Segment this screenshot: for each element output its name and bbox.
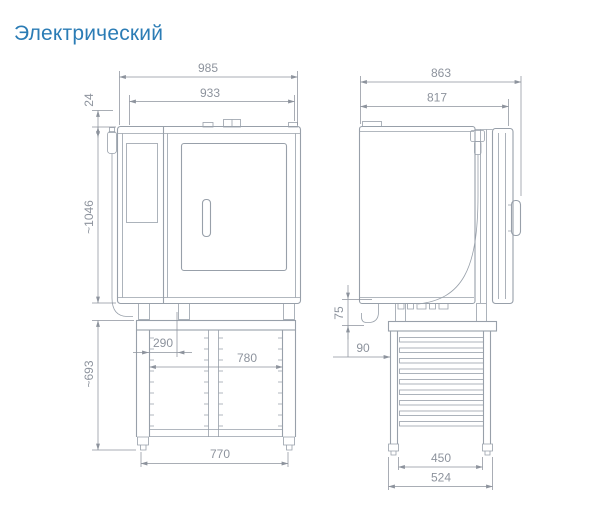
front-oven-body <box>118 127 301 304</box>
side-oven-body <box>360 122 514 304</box>
dim-front-stand-height: ~693 <box>82 360 96 387</box>
drain-pipe <box>362 304 379 323</box>
dim-side-stand-setback: 90 <box>356 341 370 355</box>
top-vents <box>203 120 298 128</box>
oven-feet <box>139 304 295 320</box>
dim-side-feet-outer: 524 <box>431 471 451 485</box>
dim-side-drain-height: 75 <box>332 306 346 320</box>
dim-side-body-depth: 817 <box>427 91 447 105</box>
front-dimensions: 985 933 24 ~1046 ~693 290 780 770 <box>82 61 298 467</box>
side-stand <box>389 322 497 456</box>
dim-side-feet-inner: 450 <box>431 451 451 465</box>
dimension-drawing: 985 933 24 ~1046 ~693 290 780 770 <box>0 0 600 514</box>
rack-rail-ticks <box>150 338 283 426</box>
stand-slats <box>400 338 484 427</box>
door-handle <box>203 200 211 237</box>
dim-front-overall-width: 985 <box>198 61 218 75</box>
dim-front-stand-clear-width: 780 <box>237 351 257 365</box>
front-view: 985 933 24 ~1046 ~693 290 780 770 <box>82 61 301 467</box>
dim-front-foot-offset: 290 <box>153 336 173 350</box>
door-glass <box>182 144 287 271</box>
dim-front-top-detail: 24 <box>82 93 96 107</box>
side-underside <box>362 304 487 323</box>
dim-front-overall-height: ~1046 <box>82 200 96 234</box>
control-panel-display <box>127 144 158 223</box>
side-view: 863 817 75 90 450 524 <box>332 66 521 490</box>
dim-front-stand-feet-width: 770 <box>210 447 230 461</box>
hand-shower <box>108 128 134 317</box>
side-door-handle <box>508 201 521 236</box>
dim-front-body-width: 933 <box>200 86 220 100</box>
dim-side-overall-depth: 863 <box>431 66 451 80</box>
